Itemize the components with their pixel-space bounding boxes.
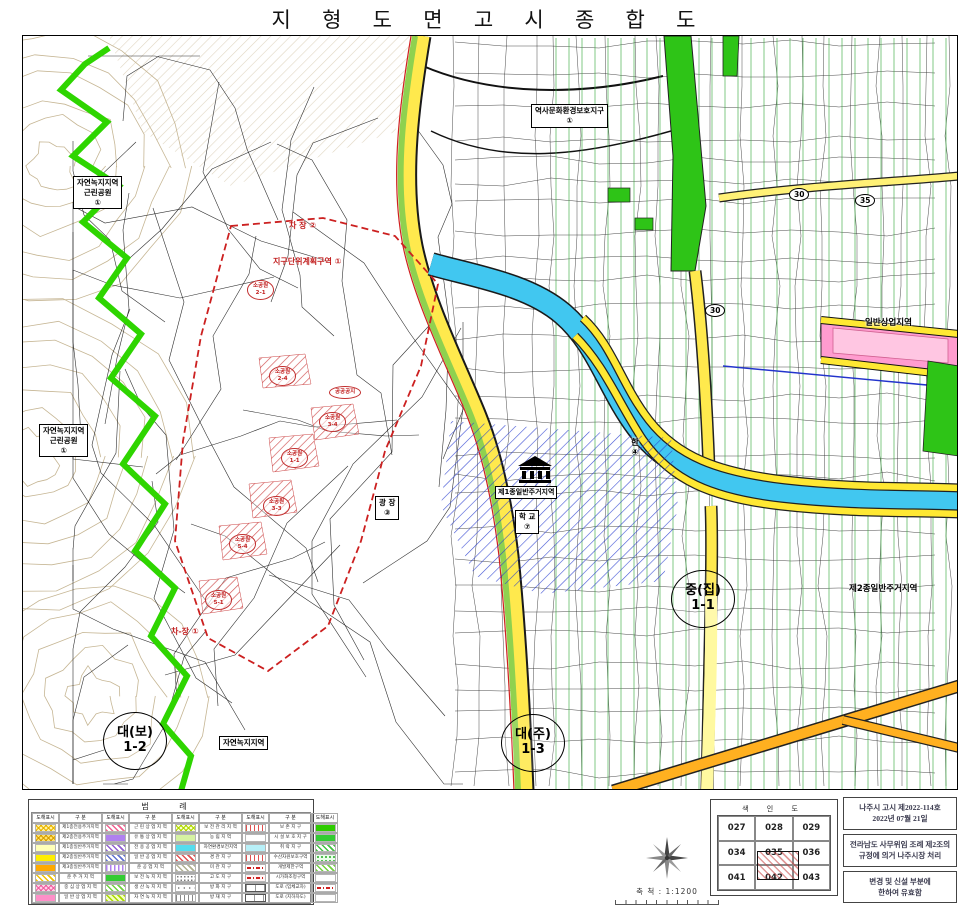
- legend-label: 제1종일반주거지역: [59, 843, 102, 853]
- legend-label: 농 림 지 역: [199, 833, 242, 843]
- legend-label: 제2종일반주거지역: [59, 853, 102, 863]
- legend-label: 일 반 상 업 지 역: [59, 893, 102, 903]
- map-label-district-unit-plan: 지구단위계획구역 ①: [273, 256, 341, 267]
- legend-label: 방 재 지 구: [199, 893, 242, 903]
- legend-swatch: [242, 833, 269, 843]
- legend-swatch: [32, 863, 59, 873]
- map-label-road-width-30a: 30: [789, 188, 809, 201]
- legend-category-header: 구 분: [59, 813, 102, 823]
- legend-label: 보 전 녹 지 지 역: [129, 873, 172, 883]
- map-label-heritage-district: 역사문화환경보호지구①: [531, 104, 608, 128]
- legend-panel: 범 례 도해표시구 분도해표시구 분도해표시구 분도해표시구 분도해표시제1종전…: [28, 799, 314, 905]
- scale-bar: [615, 900, 719, 905]
- legend-label: 전 용 공 업 지 역: [129, 843, 172, 853]
- legend-swatch: [32, 833, 59, 843]
- compass-rose-icon: [645, 836, 689, 880]
- index-cell-028: 028: [755, 816, 792, 841]
- index-cell-041: 041: [718, 865, 755, 890]
- legend-symbol-header: 도해표시: [242, 813, 269, 823]
- map-label-sp-3-3: 소공원3-3: [263, 496, 290, 516]
- legend-swatch: [172, 893, 199, 903]
- legend-label: 유 통 상 업 지 역: [129, 833, 172, 843]
- map-label-parcel-dae-ju: 대(주)1-3: [501, 714, 565, 772]
- legend-label: 보 전 관 리 지 역: [199, 823, 242, 833]
- map-label-parcel-jung-jip: 중(집)1-1: [671, 570, 735, 628]
- legend-swatch: [312, 843, 338, 853]
- legend-swatch: [312, 833, 338, 843]
- legend-label: 근 린 상 업 지 역: [129, 823, 172, 833]
- legend-label: 자연환경보전지역: [199, 843, 242, 853]
- map-label-school-zone: 제1종일반주거지역: [495, 486, 557, 499]
- legend-label: 제1종전용주거지역: [59, 823, 102, 833]
- legend-swatch: [312, 823, 338, 833]
- legend-swatch: [242, 843, 269, 853]
- scale-text: 축 척 : 1:1200: [612, 886, 722, 897]
- legend-category-header: 구 분: [199, 813, 242, 823]
- legend-swatch: [172, 873, 199, 883]
- legend-label: 미 관 지 구: [199, 863, 242, 873]
- legend-swatch: [102, 863, 129, 873]
- page-title: 지 형 도 면 고 시 종 합 도: [0, 4, 980, 34]
- map-label-zone-park-2: 자연녹지지역근린공원①: [39, 424, 88, 457]
- notice-box-3: 변경 및 신설 부분에한하여 유효함: [843, 871, 957, 904]
- index-map-panel: 색 인 도 027028029034035036041042043: [710, 799, 838, 896]
- legend-label: 취 락 지 구: [269, 843, 312, 853]
- legend-symbol-header: 도해표시: [172, 813, 199, 823]
- legend-swatch: [312, 853, 338, 863]
- legend-swatch: [32, 843, 59, 853]
- map-label-zone-natural-green: 자연녹지지역: [219, 736, 268, 750]
- legend-swatch: [172, 853, 199, 863]
- legend-label: 일 반 공 업 지 역: [129, 853, 172, 863]
- legend-label: 제2종전용주거지역: [59, 833, 102, 843]
- map-label-open-space: 공공공지: [329, 386, 361, 399]
- legend-swatch: [312, 883, 338, 893]
- legend-swatch: [102, 843, 129, 853]
- notice-box-2: 전라남도 사무위임 조례 제2조의규정에 의거 나주시장 처리: [843, 834, 957, 867]
- legend-symbol-header: 도해표시: [32, 813, 59, 823]
- legend-swatch: [242, 873, 269, 883]
- legend-swatch: [242, 893, 269, 903]
- legend-label: 준 공 업 지 역: [129, 863, 172, 873]
- legend-label: 생 산 녹 지 지 역: [129, 883, 172, 893]
- legend-swatch: [102, 833, 129, 843]
- legend-swatch: [242, 863, 269, 873]
- map-label-sp-1-1: 소공원1-1: [281, 448, 308, 468]
- legend-swatch: [312, 873, 338, 883]
- legend-label: 고 도 지 구: [199, 873, 242, 883]
- legend-swatch: [172, 843, 199, 853]
- legend-swatch: [242, 883, 269, 893]
- legend-symbol-header: 도해표시: [312, 813, 338, 823]
- map-label-sp-2-4: 소공원2-4: [269, 366, 296, 386]
- legend-swatch: [102, 893, 129, 903]
- notice-stack: 나주시 고시 제2022-114호2022년 07월 21일전라남도 사무위임 …: [843, 797, 957, 907]
- school-building-icon: [517, 456, 553, 488]
- legend-swatch: [172, 863, 199, 873]
- legend-swatch: [32, 883, 59, 893]
- index-cell-029: 029: [793, 816, 830, 841]
- index-map-highlight: [757, 851, 799, 880]
- legend-label: 수산자원보호구역: [269, 853, 312, 863]
- legend-swatch: [312, 863, 338, 873]
- legend-label: 시가화조정구역: [269, 873, 312, 883]
- legend-swatch: [242, 823, 269, 833]
- map-label-parking-1: 차-장 ①: [171, 626, 199, 637]
- legend-swatch: [102, 883, 129, 893]
- legend-swatch: [102, 873, 129, 883]
- legend-label: 제3종일반주거지역: [59, 863, 102, 873]
- notice-box-1: 나주시 고시 제2022-114호2022년 07월 21일: [843, 797, 957, 830]
- map-label-river-name: 한④: [631, 438, 639, 458]
- legend-label: 자 연 녹 지 지 역: [129, 893, 172, 903]
- index-map-grid: 027028029034035036041042043: [717, 815, 831, 891]
- legend-swatch: [172, 833, 199, 843]
- map-label-sp-2-1: 소공원2-1: [247, 280, 274, 300]
- legend-label: 도로 (입체교차): [269, 883, 312, 893]
- legend-label: 도로 (지하차도): [269, 893, 312, 903]
- legend-category-header: 구 분: [269, 813, 312, 823]
- map-label-sp-3-4: 소공원3-4: [319, 412, 346, 432]
- legend-label: 개발제한구역: [269, 863, 312, 873]
- legend-label: 시 설 보 호 지 구: [269, 833, 312, 843]
- legend-label: 경 관 지 구: [199, 853, 242, 863]
- map-label-commercial-zone: 일반상업지역: [865, 318, 912, 328]
- compass-and-scale: 축 척 : 1:1200: [612, 836, 722, 905]
- map-label-parking-2: 차 장 ②: [289, 220, 316, 231]
- legend-swatch: [32, 893, 59, 903]
- legend-label: 준 주 거 지 역: [59, 873, 102, 883]
- map-labels-layer: 자연녹지지역근린공원①자연녹지지역근린공원①자연녹지지역역사문화환경보호지구①광…: [23, 36, 957, 789]
- legend-swatch: [32, 853, 59, 863]
- index-cell-027: 027: [718, 816, 755, 841]
- map-label-sp-5-1: 소공원5-1: [205, 590, 232, 610]
- legend-symbol-header: 도해표시: [102, 813, 129, 823]
- map-label-resid2-zone: 제2종일반주거지역: [849, 584, 917, 594]
- map-label-road-width-30b: 30: [705, 304, 725, 317]
- legend-label: 보 존 지 구: [269, 823, 312, 833]
- legend-swatch: [242, 853, 269, 863]
- legend-table: 도해표시구 분도해표시구 분도해표시구 분도해표시구 분도해표시제1종전용주거지…: [31, 812, 311, 904]
- legend-swatch: [32, 823, 59, 833]
- legend-swatch: [172, 883, 199, 893]
- legend-label: 중 심 상 업 지 역: [59, 883, 102, 893]
- legend-swatch: [102, 853, 129, 863]
- map-canvas: 자연녹지지역근린공원①자연녹지지역근린공원①자연녹지지역역사문화환경보호지구①광…: [22, 35, 958, 790]
- map-label-school: 학 교⑦: [515, 510, 539, 534]
- map-label-parcel-dae-bo: 대(보)1-2: [103, 712, 167, 770]
- legend-title: 범 례: [31, 801, 311, 812]
- legend-swatch: [102, 823, 129, 833]
- map-label-zone-park-1: 자연녹지지역근린공원①: [73, 176, 122, 209]
- index-cell-034: 034: [718, 841, 755, 866]
- map-label-sp-5-4: 소공원5-4: [229, 534, 256, 554]
- legend-label: 방 화 지 구: [199, 883, 242, 893]
- legend-swatch: [172, 823, 199, 833]
- legend-swatch: [32, 873, 59, 883]
- index-map-title: 색 인 도: [717, 803, 831, 815]
- legend-category-header: 구 분: [129, 813, 172, 823]
- map-label-road-width-35: 35: [855, 194, 875, 207]
- map-label-plaza: 광 장③: [375, 496, 399, 520]
- legend-swatch: [312, 893, 338, 903]
